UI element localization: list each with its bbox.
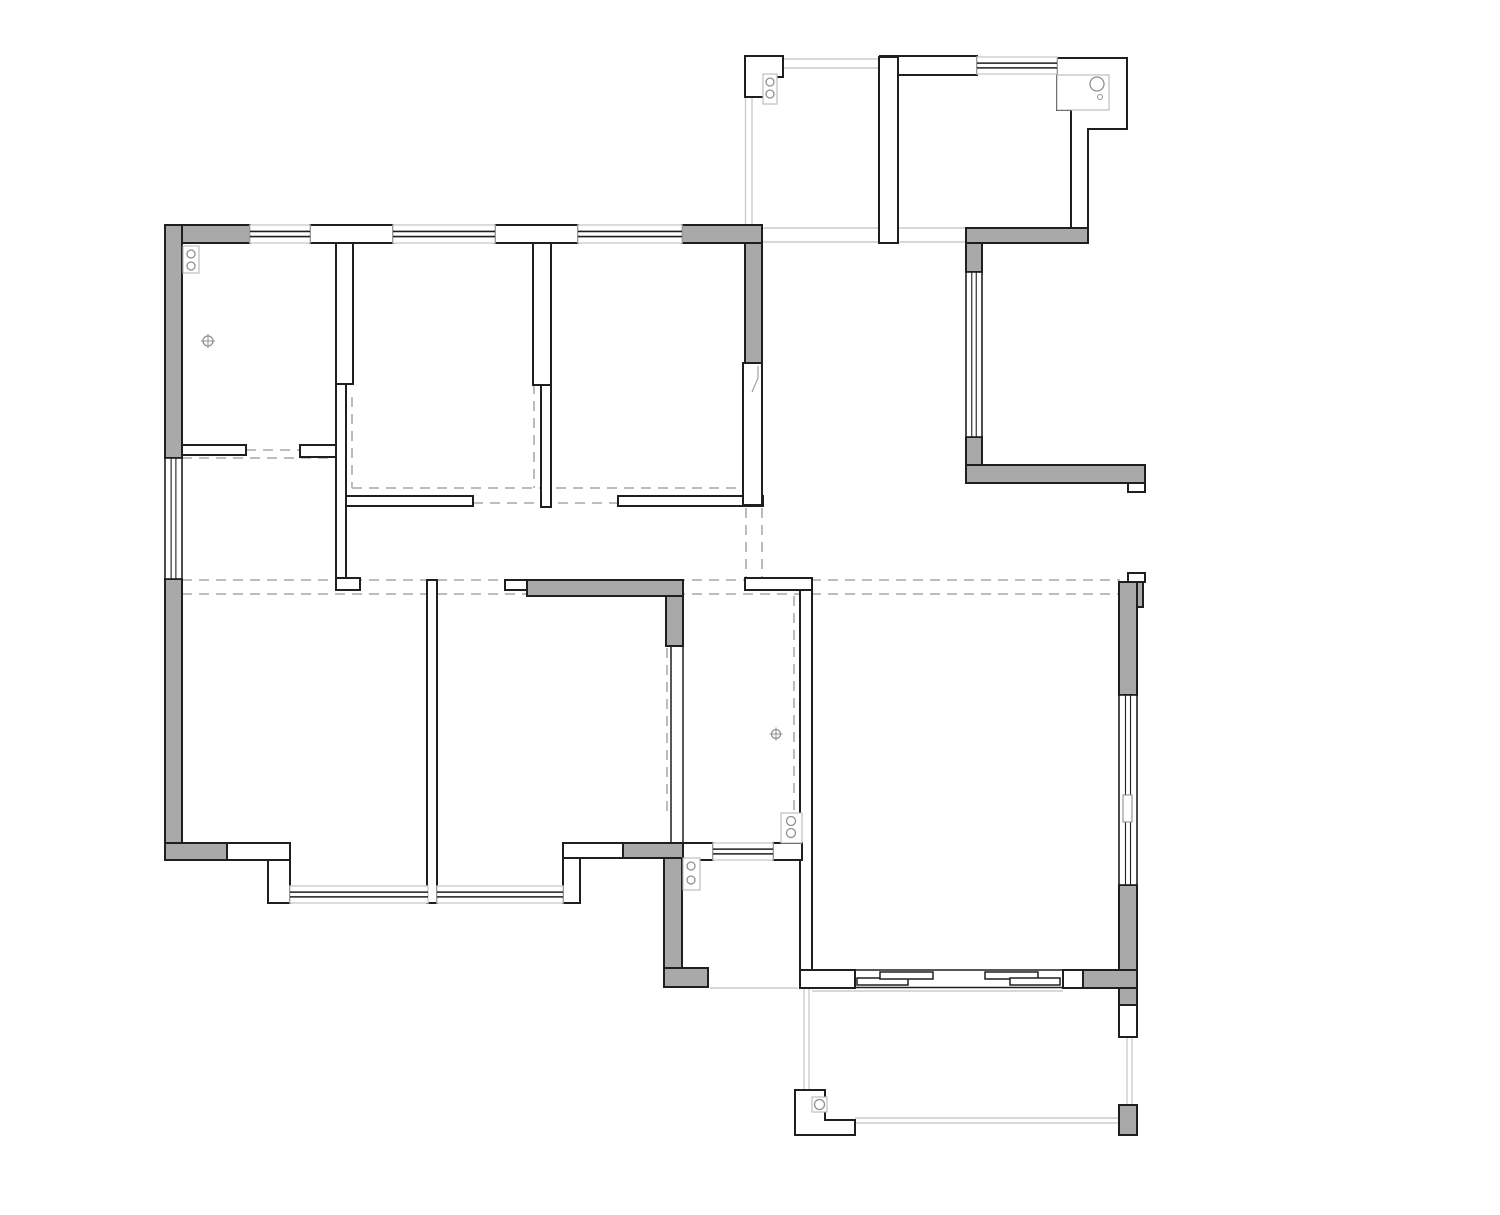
interior-wall (800, 590, 812, 970)
structural-wall (1119, 582, 1137, 695)
thin-partition-wall (671, 645, 683, 843)
structural-wall (664, 968, 708, 987)
counter-outline (1057, 75, 1109, 110)
structural-wall (666, 596, 683, 646)
window-frame (165, 458, 182, 579)
structural-wall (165, 225, 182, 458)
interior-wall (268, 860, 290, 903)
structural-wall (682, 225, 762, 243)
interior-wall (182, 445, 246, 455)
structural-wall (1119, 1105, 1137, 1135)
interior-wall (533, 243, 551, 385)
window-handle (1123, 795, 1132, 822)
structural-wall (1083, 970, 1137, 988)
structural-wall (623, 843, 683, 858)
structural-wall (165, 843, 227, 860)
structural-wall (966, 437, 982, 465)
door-hinge-symbol-box (683, 858, 700, 890)
interior-wall (336, 384, 346, 578)
structural-wall (664, 858, 682, 968)
window-frame (977, 57, 1057, 74)
interior-wall (505, 580, 528, 590)
interior-wall (563, 843, 623, 858)
window-frame (437, 886, 563, 903)
sliding-door-panel (880, 972, 933, 979)
window-frame (713, 843, 773, 860)
window-frame (1119, 695, 1137, 885)
interior-wall (427, 580, 437, 903)
interior-wall (879, 57, 898, 243)
interior-wall (618, 496, 763, 506)
interior-wall (495, 225, 578, 243)
interior-wall (227, 843, 290, 860)
structural-wall (745, 243, 762, 363)
interior-wall (1128, 573, 1145, 582)
interior-wall (300, 445, 336, 457)
structural-wall (966, 243, 982, 272)
structural-wall (966, 465, 1145, 483)
interior-wall (1119, 1005, 1137, 1037)
structural-wall (966, 228, 1088, 243)
structural-wall (165, 579, 182, 843)
interior-wall (563, 858, 580, 903)
interior-wall (541, 385, 551, 507)
interior-wall (743, 363, 762, 505)
interior-wall (310, 225, 393, 243)
interior-wall (346, 496, 473, 506)
sliding-door-panel (1010, 978, 1060, 985)
interior-wall (336, 243, 353, 384)
interior-wall (773, 843, 802, 860)
floor-plan-drawing (0, 0, 1500, 1215)
interior-wall (1128, 483, 1145, 492)
floorplan-page (0, 0, 1500, 1215)
interior-wall (745, 578, 812, 590)
window-frame (966, 272, 982, 437)
window-frame (578, 225, 682, 243)
window-frame (290, 886, 428, 903)
window-frame (393, 225, 495, 243)
interior-wall (1063, 970, 1083, 988)
interior-wall (800, 970, 855, 988)
interior-wall (336, 578, 360, 590)
window-frame (250, 225, 310, 243)
structural-wall (527, 580, 683, 596)
